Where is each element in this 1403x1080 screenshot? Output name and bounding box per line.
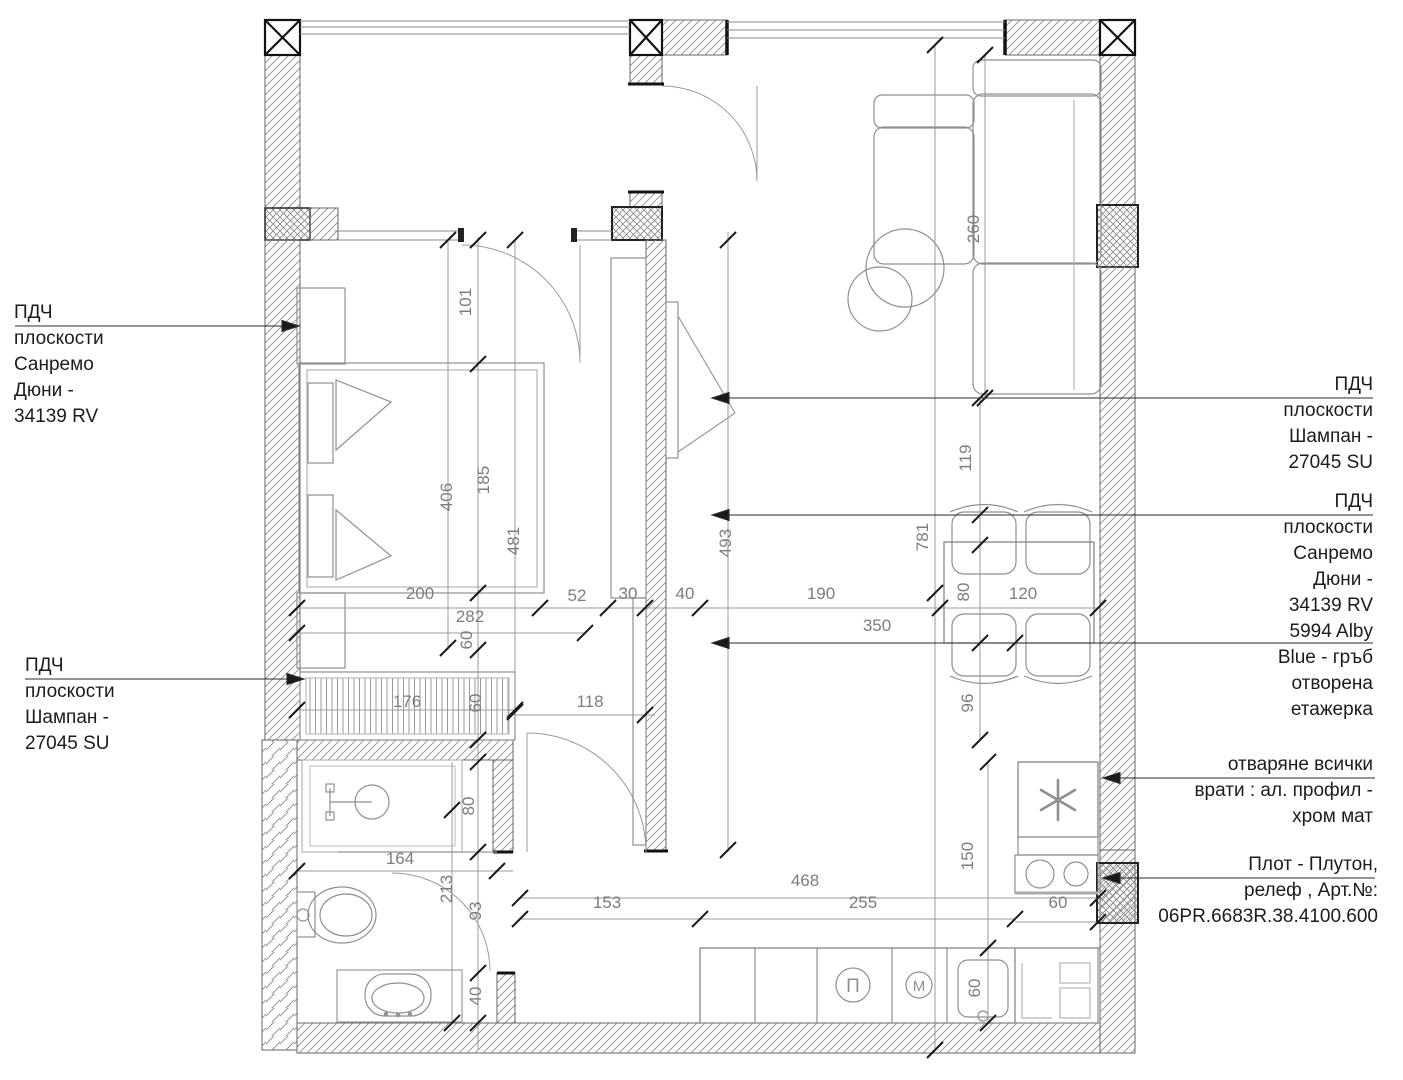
dimension-label: 93 <box>466 902 485 921</box>
dimension-label: 200 <box>406 584 434 603</box>
dimension-label: 30 <box>619 584 638 603</box>
cooktop-burner <box>1026 860 1054 888</box>
sofa-chaise <box>874 95 974 128</box>
wall-outer-bottom-left <box>262 740 297 1050</box>
hall-cabinet <box>611 258 646 598</box>
dimension-label: 60 <box>457 631 476 650</box>
dimension-label: 185 <box>474 466 493 494</box>
sofa-cushion <box>973 263 1101 394</box>
dimension-label: 260 <box>964 215 983 243</box>
side-table <box>848 267 912 331</box>
annotation-right-doors: отваряне всички врати : ал. профил - хро… <box>1148 752 1373 830</box>
dimension-label: 40 <box>466 987 485 1006</box>
dimension-label: 350 <box>863 616 891 635</box>
dimension-label: 96 <box>958 694 977 713</box>
cooktop <box>1015 855 1098 893</box>
nightstand <box>297 288 345 364</box>
chair <box>1026 614 1090 676</box>
wall <box>630 192 662 207</box>
wall <box>1100 267 1135 850</box>
dimension-label: 40 <box>676 584 695 603</box>
wall-crosshatch-block <box>612 207 662 240</box>
dimension-label: 80 <box>459 797 478 816</box>
wall <box>497 973 515 1023</box>
washer-icon: М <box>913 978 926 995</box>
pillow <box>308 495 333 577</box>
base-cabinet <box>1015 948 1098 1023</box>
wall <box>1100 55 1135 205</box>
sofa-chaise <box>874 127 974 264</box>
chair <box>952 512 1016 574</box>
wall <box>1005 20 1100 55</box>
annotation-left-bottom: ПДЧ плоскости Шампан - 27045 SU <box>25 653 175 757</box>
chair <box>1026 512 1090 574</box>
bedroom-door-arc <box>462 245 580 363</box>
wall <box>297 1023 1100 1053</box>
wall <box>297 740 513 760</box>
dimension-label: 119 <box>956 444 975 471</box>
wall <box>265 55 300 208</box>
pillow <box>336 510 391 580</box>
wall <box>493 760 513 852</box>
dimension-label: 101 <box>456 288 475 316</box>
hall-door-arc <box>527 733 646 852</box>
wall <box>662 20 727 55</box>
pillow <box>308 383 333 463</box>
dimension-label: 150 <box>958 842 977 870</box>
annotation-right-top: ПДЧ плоскости Шампан - 27045 SU <box>1233 372 1373 476</box>
oven-icon: П <box>846 976 860 997</box>
dimension-label: 493 <box>716 529 735 557</box>
wall <box>630 55 662 84</box>
sink-tap <box>978 1011 988 1021</box>
entry-door-arc <box>662 86 757 181</box>
wall <box>265 240 300 740</box>
toilet <box>297 887 376 943</box>
dimension-label: 255 <box>849 893 877 912</box>
annotation-right-countertop: Плот - Плутон, релеф , Арт.№: 06PR.6683R… <box>1140 852 1378 930</box>
wall-crosshatch-block <box>1097 205 1138 267</box>
dimension-label: 120 <box>1009 584 1037 603</box>
floor-plan-page: П М <box>0 0 1403 1080</box>
wall <box>310 208 338 240</box>
doors <box>392 86 757 971</box>
dimension-label: 60 <box>466 694 485 713</box>
dimension-ticks <box>289 37 1106 1058</box>
vanity-sink <box>337 970 462 1022</box>
dimension-label: 481 <box>504 527 523 555</box>
dimension-label: 406 <box>437 483 456 511</box>
nightstand <box>297 593 345 668</box>
dimension-label: 80 <box>954 583 973 602</box>
dimension-label: 60 <box>1049 893 1068 912</box>
wall-crosshatch-block <box>265 208 310 240</box>
tv <box>666 302 678 458</box>
chair <box>952 614 1016 676</box>
sofa-cushion <box>973 94 1101 264</box>
dimension-label: 781 <box>913 523 932 551</box>
side-table <box>866 229 944 307</box>
dimension-label: 118 <box>576 692 603 711</box>
dimension-label: 190 <box>807 584 835 603</box>
sofa-armrest <box>973 60 1101 96</box>
dimension-label: 153 <box>593 893 621 912</box>
kitchen-counter <box>700 948 1100 1023</box>
fridge-snowflake-icon <box>1041 780 1075 820</box>
wall-partition <box>646 240 666 852</box>
dimension-labels: 1014061854816060493802139340260119781809… <box>386 215 1068 1006</box>
dimension-label: 176 <box>393 692 421 711</box>
dimension-label: 282 <box>456 607 484 626</box>
annotation-right-middle: ПДЧ плоскости Санремо Дюни - 34139 RV 59… <box>1233 489 1373 723</box>
annotation-left-top: ПДЧ плоскости Санремо Дюни - 34139 RV <box>14 300 164 430</box>
dimension-label: 60 <box>965 979 984 998</box>
pillow <box>336 380 391 450</box>
dimension-label: 213 <box>437 875 456 903</box>
dimension-label: 52 <box>568 586 587 605</box>
dimension-label: 468 <box>791 871 819 890</box>
cooktop-burner <box>1064 862 1088 886</box>
dimension-label: 164 <box>386 849 414 868</box>
